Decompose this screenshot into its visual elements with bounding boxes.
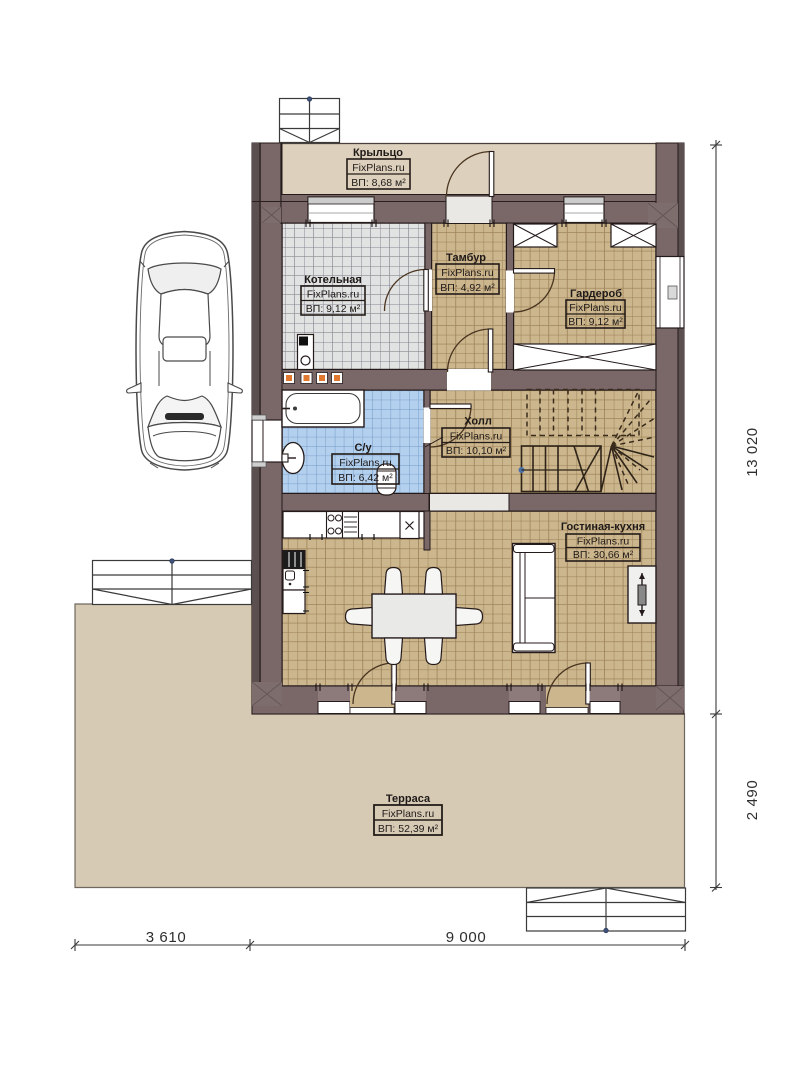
svg-text:ВП: 9,12 м²: ВП: 9,12 м²: [568, 316, 623, 328]
svg-text:FixPlans.ru: FixPlans.ru: [382, 808, 435, 820]
svg-text:9 000: 9 000: [446, 929, 487, 946]
svg-text:Гардероб: Гардероб: [570, 288, 622, 300]
svg-text:Терраса: Терраса: [386, 793, 431, 805]
svg-text:FixPlans.ru: FixPlans.ru: [307, 289, 360, 301]
svg-text:FixPlans.ru: FixPlans.ru: [339, 457, 392, 469]
svg-text:3 610: 3 610: [146, 929, 187, 946]
svg-text:FixPlans.ru: FixPlans.ru: [352, 162, 405, 174]
svg-text:2 490: 2 490: [744, 780, 761, 821]
svg-text:FixPlans.ru: FixPlans.ru: [450, 431, 503, 443]
svg-text:ВП: 6,42 м²: ВП: 6,42 м²: [338, 472, 393, 484]
svg-text:ВП: 30,66 м²: ВП: 30,66 м²: [573, 549, 634, 561]
svg-text:Тамбур: Тамбур: [446, 252, 486, 264]
svg-text:FixPlans.ru: FixPlans.ru: [569, 302, 622, 314]
svg-text:Крыльцо: Крыльцо: [353, 147, 403, 159]
svg-text:ВП: 10,10 м²: ВП: 10,10 м²: [446, 445, 507, 457]
svg-text:ВП: 9,12 м²: ВП: 9,12 м²: [306, 303, 361, 315]
svg-text:Котельная: Котельная: [304, 274, 362, 286]
svg-text:ВП: 52,39 м²: ВП: 52,39 м²: [378, 823, 439, 835]
svg-text:FixPlans.ru: FixPlans.ru: [441, 267, 494, 279]
svg-text:13 020: 13 020: [744, 427, 761, 476]
svg-text:ВП: 4,92 м²: ВП: 4,92 м²: [440, 282, 495, 294]
svg-text:ВП: 8,68 м²: ВП: 8,68 м²: [351, 177, 406, 189]
svg-text:FixPlans.ru: FixPlans.ru: [577, 536, 630, 548]
svg-text:Гостиная-кухня: Гостиная-кухня: [561, 521, 645, 533]
svg-text:С/у: С/у: [354, 442, 372, 454]
svg-text:Холл: Холл: [464, 416, 492, 428]
